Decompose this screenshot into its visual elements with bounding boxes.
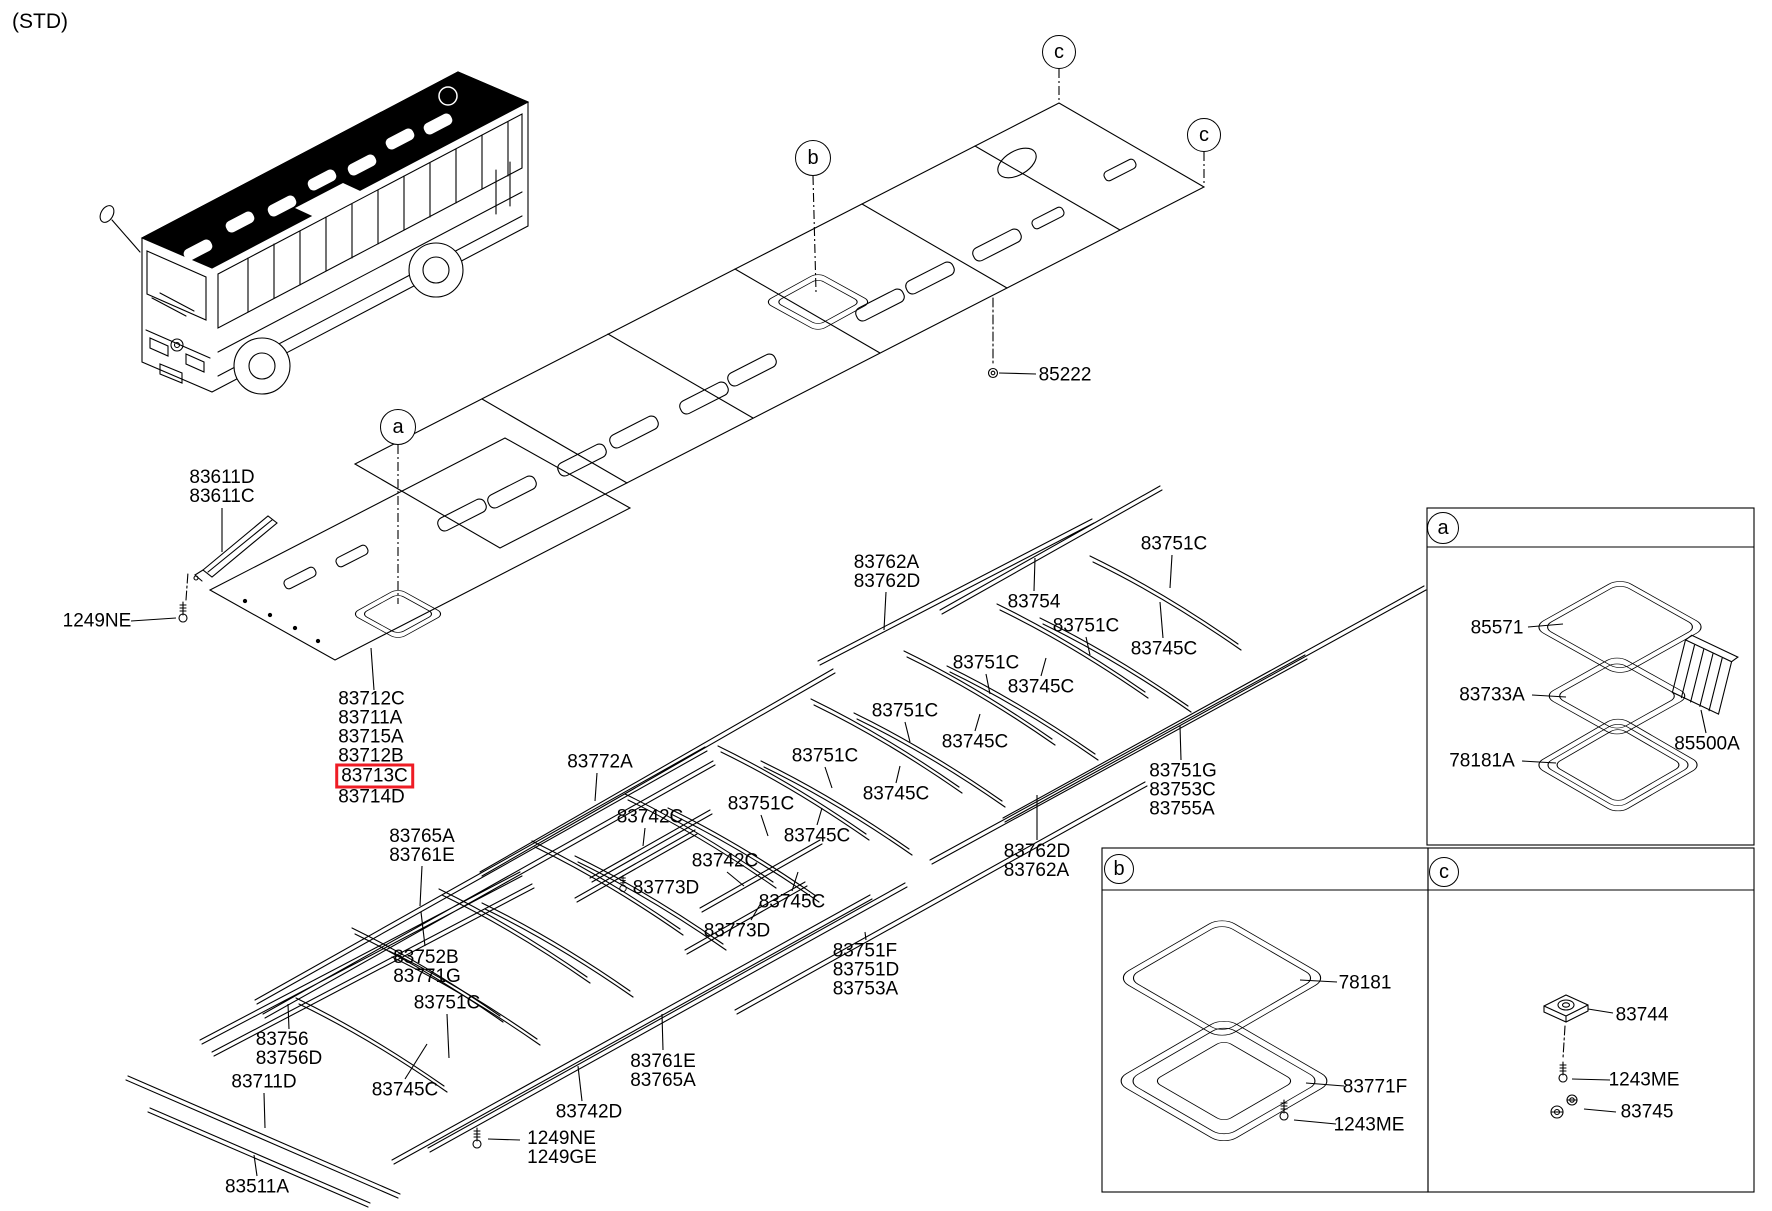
part-number: 83745C bbox=[1008, 678, 1075, 697]
part-number: 83762A bbox=[1004, 861, 1071, 880]
part-number: 83745C bbox=[784, 827, 851, 846]
callout-c: c bbox=[1042, 35, 1076, 69]
part-label-83751C: 83751C bbox=[1141, 535, 1208, 554]
part-number: 83751C bbox=[414, 994, 481, 1013]
callout-c: c bbox=[1429, 857, 1459, 887]
part-label-78181: 78181 bbox=[1339, 974, 1392, 993]
part-label-83744: 83744 bbox=[1616, 1006, 1669, 1025]
part-number: 1243ME bbox=[1609, 1071, 1680, 1090]
part-number: 83754 bbox=[1008, 593, 1061, 612]
part-label-83611D: 83611D83611C bbox=[189, 468, 254, 506]
part-label-83762D: 83762D83762A bbox=[1004, 842, 1071, 880]
part-label-1243ME: 1243ME bbox=[1334, 1116, 1405, 1135]
part-label-1243ME: 1243ME bbox=[1609, 1071, 1680, 1090]
part-number: 1249GE bbox=[527, 1148, 597, 1167]
part-number: 83511A bbox=[225, 1178, 289, 1197]
std-note: (STD) bbox=[12, 10, 68, 34]
part-number: 83712B bbox=[338, 747, 414, 766]
part-label-83752B: 83752B83771G bbox=[393, 948, 461, 986]
callout-a: a bbox=[380, 409, 416, 445]
part-number: 78181A bbox=[1449, 752, 1515, 771]
part-number: 83745C bbox=[372, 1081, 439, 1100]
part-number: 83756D bbox=[256, 1049, 323, 1068]
callout-a: a bbox=[1427, 512, 1459, 544]
part-number: 83714D bbox=[338, 788, 414, 807]
part-label-83733A: 83733A bbox=[1459, 686, 1525, 705]
part-number: 83751C bbox=[1141, 535, 1208, 554]
part-number: 83755A bbox=[1149, 800, 1217, 819]
part-number: 83761E bbox=[389, 846, 455, 865]
part-number: 83715A bbox=[338, 728, 414, 747]
part-label-83751G: 83751G83753C83755A bbox=[1149, 762, 1217, 819]
part-label-83745C: 83745C bbox=[759, 893, 826, 912]
part-number: 83742C bbox=[617, 808, 684, 827]
part-label-83742C: 83742C bbox=[617, 808, 684, 827]
part-number: 83745C bbox=[759, 893, 826, 912]
part-number: 1243ME bbox=[1334, 1116, 1405, 1135]
part-number: 83711D bbox=[231, 1073, 296, 1092]
part-number: 83744 bbox=[1616, 1006, 1669, 1025]
part-label-83745C: 83745C bbox=[1131, 640, 1198, 659]
part-label-83745C: 83745C bbox=[863, 785, 930, 804]
part-label-83742C: 83742C bbox=[692, 852, 759, 871]
part-label-83745C: 83745C bbox=[372, 1081, 439, 1100]
part-label-83761E: 83761E83765A bbox=[630, 1052, 696, 1090]
part-label-83772A: 83772A bbox=[567, 753, 633, 772]
part-number: 83611C bbox=[189, 487, 254, 506]
part-number: 83765A bbox=[389, 827, 455, 846]
part-label-83762A: 83762A83762D bbox=[854, 553, 921, 591]
callout-b: b bbox=[1104, 854, 1134, 884]
part-number: 83762D bbox=[854, 572, 921, 591]
part-number: 83772A bbox=[567, 753, 633, 772]
part-label-83751C: 83751C bbox=[792, 747, 859, 766]
callout-c: c bbox=[1187, 118, 1221, 152]
part-label-85500A: 85500A bbox=[1674, 735, 1740, 754]
part-label-83754: 83754 bbox=[1008, 593, 1061, 612]
part-number: 83745 bbox=[1621, 1103, 1674, 1122]
part-number: 83712C bbox=[338, 690, 414, 709]
part-label-85571: 85571 bbox=[1471, 619, 1524, 638]
part-number: 83773D bbox=[704, 922, 771, 941]
part-label-83765A: 83765A83761E bbox=[389, 827, 455, 865]
part-number: 83761E bbox=[630, 1052, 696, 1071]
part-label-83773D: 83773D bbox=[633, 879, 700, 898]
part-number: 83753C bbox=[1149, 781, 1217, 800]
part-number: 83751C bbox=[872, 702, 939, 721]
callout-b: b bbox=[795, 140, 831, 176]
part-number: 83733A bbox=[1459, 686, 1525, 705]
part-label-1249NE: 1249NE bbox=[63, 612, 132, 631]
part-number: 83753A bbox=[833, 980, 900, 999]
part-number: 83745C bbox=[942, 733, 1009, 752]
part-number: 83711A bbox=[338, 709, 414, 728]
part-label-83745C: 83745C bbox=[942, 733, 1009, 752]
part-label-83711D: 83711D bbox=[231, 1073, 296, 1092]
part-label-83751C: 83751C bbox=[1053, 617, 1120, 636]
part-number: 83765A bbox=[630, 1071, 696, 1090]
part-label-83756: 8375683756D bbox=[256, 1030, 323, 1068]
part-number: 85571 bbox=[1471, 619, 1524, 638]
part-label-85222: 85222 bbox=[1039, 366, 1092, 385]
part-label-83745C: 83745C bbox=[1008, 678, 1075, 697]
part-number: 83771G bbox=[393, 967, 461, 986]
part-number: 83742D bbox=[556, 1103, 623, 1122]
part-number: 1249NE bbox=[63, 612, 132, 631]
part-label-83751F: 83751F83751D83753A bbox=[833, 942, 900, 999]
part-number: 83745C bbox=[1131, 640, 1198, 659]
part-number: 83751C bbox=[728, 795, 795, 814]
part-number: 83751F bbox=[833, 942, 900, 961]
part-label-83745: 83745 bbox=[1621, 1103, 1674, 1122]
part-label-83745C: 83745C bbox=[784, 827, 851, 846]
labels-layer: 83611D83611C1249NE83712C83711A83715A8371… bbox=[0, 0, 1772, 1211]
part-number: 83742C bbox=[692, 852, 759, 871]
part-label-83511A: 83511A bbox=[225, 1178, 289, 1197]
part-number: 83752B bbox=[393, 948, 461, 967]
parts-diagram-page: 83611D83611C1249NE83712C83711A83715A8371… bbox=[0, 0, 1772, 1211]
part-label-83712C: 83712C83711A83715A83712B83713C83714D bbox=[338, 690, 414, 807]
part-number: 83751C bbox=[792, 747, 859, 766]
part-number: 83611D bbox=[189, 468, 254, 487]
part-number: 83751C bbox=[1053, 617, 1120, 636]
part-label-83773D: 83773D bbox=[704, 922, 771, 941]
part-number: 83756 bbox=[256, 1030, 323, 1049]
part-number: 1249NE bbox=[527, 1129, 597, 1148]
part-label-83771F: 83771F bbox=[1343, 1078, 1407, 1097]
part-number: 78181 bbox=[1339, 974, 1392, 993]
part-number: 83751C bbox=[953, 654, 1020, 673]
part-number: 83762A bbox=[854, 553, 921, 572]
part-number: 83751D bbox=[833, 961, 900, 980]
part-number: 83751G bbox=[1149, 762, 1217, 781]
part-label-83751C: 83751C bbox=[728, 795, 795, 814]
part-number: 83745C bbox=[863, 785, 930, 804]
part-label-83751C: 83751C bbox=[414, 994, 481, 1013]
part-label-1249NE: 1249NE1249GE bbox=[527, 1129, 597, 1167]
part-number: 85222 bbox=[1039, 366, 1092, 385]
part-label-83751C: 83751C bbox=[953, 654, 1020, 673]
part-number: 85500A bbox=[1674, 735, 1740, 754]
part-label-78181A: 78181A bbox=[1449, 752, 1515, 771]
part-number: 83773D bbox=[633, 879, 700, 898]
part-label-83751C: 83751C bbox=[872, 702, 939, 721]
part-number: 83762D bbox=[1004, 842, 1071, 861]
part-label-83742D: 83742D bbox=[556, 1103, 623, 1122]
part-number: 83771F bbox=[1343, 1078, 1407, 1097]
highlighted-part-number: 83713C bbox=[335, 764, 414, 789]
